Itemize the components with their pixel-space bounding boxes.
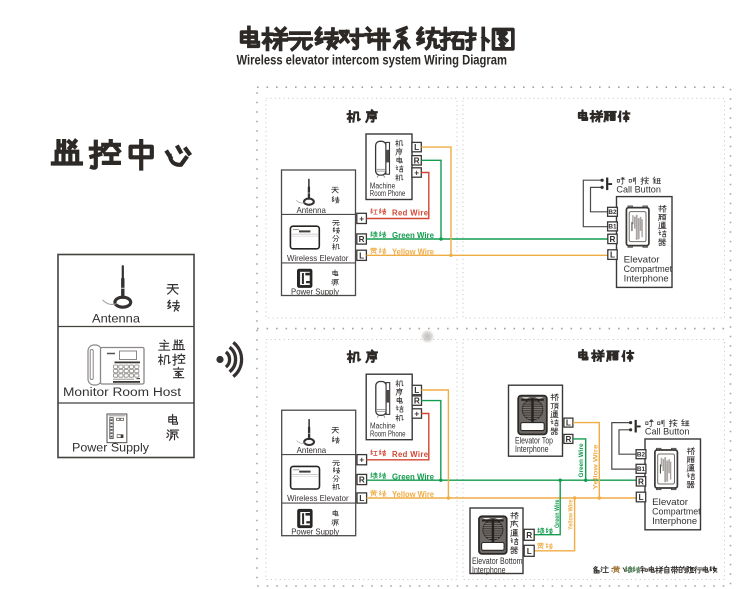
svg-text:Antenna: Antenna	[92, 312, 140, 326]
svg-text:R: R	[359, 235, 365, 244]
svg-text:R: R	[359, 476, 365, 485]
svg-text:Power Supply: Power Supply	[72, 440, 149, 454]
svg-text:Red Wire: Red Wire	[392, 450, 429, 459]
svg-text:Compartmet: Compartmet	[624, 264, 673, 274]
svg-text:Call Button: Call Button	[616, 184, 661, 194]
svg-text:L: L	[359, 251, 364, 260]
svg-text:B2: B2	[637, 452, 646, 459]
svg-text:Wireless elevator intercom sys: Wireless elevator intercom system Wiring…	[237, 52, 508, 67]
svg-text:Monitor Room Host: Monitor Room Host	[63, 385, 182, 399]
svg-text:L: L	[566, 419, 571, 428]
svg-text:L: L	[610, 251, 615, 260]
svg-text:R: R	[414, 156, 420, 165]
svg-text:Interphone: Interphone	[515, 444, 549, 454]
svg-text:Interphone: Interphone	[624, 274, 669, 284]
svg-text:Compartmet: Compartmet	[652, 507, 701, 517]
svg-text:Yellow Wire: Yellow Wire	[592, 444, 599, 489]
svg-text:+: +	[414, 410, 419, 419]
svg-text:R: R	[638, 477, 644, 486]
svg-text:Green Wire: Green Wire	[392, 231, 435, 240]
svg-text:Call Button: Call Button	[645, 427, 690, 437]
svg-text:Yellow Wire: Yellow Wire	[392, 490, 435, 499]
svg-text:Power Supply: Power Supply	[291, 527, 340, 537]
svg-text:Red Wire: Red Wire	[392, 209, 429, 218]
svg-text:Green Wire: Green Wire	[554, 499, 561, 528]
svg-text:Green Wire: Green Wire	[578, 443, 585, 477]
svg-text:B1: B1	[608, 224, 617, 231]
svg-text:Wireless Elevator: Wireless Elevator	[287, 493, 349, 503]
svg-text:Room Phone: Room Phone	[370, 429, 406, 438]
svg-text:Room Phone: Room Phone	[370, 189, 406, 198]
svg-text:B1: B1	[637, 466, 646, 473]
svg-text:Elevator: Elevator	[624, 255, 660, 265]
svg-text:L: L	[414, 143, 419, 152]
svg-text:L: L	[638, 493, 643, 502]
svg-text:Yellow Wire: Yellow Wire	[392, 247, 435, 256]
svg-text:Yellow Wire: Yellow Wire	[567, 499, 574, 530]
svg-text:+: +	[359, 214, 364, 223]
svg-text:Antenna: Antenna	[296, 205, 326, 215]
svg-text:Green Wire: Green Wire	[392, 472, 435, 481]
svg-text:R: R	[414, 397, 420, 406]
svg-text:R: R	[610, 235, 616, 244]
svg-text:Elevator: Elevator	[652, 497, 688, 507]
svg-text:Power Supply: Power Supply	[291, 286, 340, 296]
svg-text:Interphone: Interphone	[472, 565, 506, 575]
svg-text:R: R	[565, 435, 571, 444]
svg-text:L: L	[527, 547, 532, 556]
svg-text:L: L	[414, 386, 419, 395]
svg-text:L: L	[359, 494, 364, 503]
svg-text:+: +	[414, 169, 419, 178]
svg-text:Antenna: Antenna	[297, 445, 327, 455]
svg-text:Interphone: Interphone	[652, 516, 697, 526]
svg-text:Wireless Elevator: Wireless Elevator	[287, 253, 349, 263]
svg-text:+: +	[359, 456, 364, 465]
svg-text:R: R	[526, 531, 532, 540]
svg-text:B2: B2	[608, 209, 617, 216]
